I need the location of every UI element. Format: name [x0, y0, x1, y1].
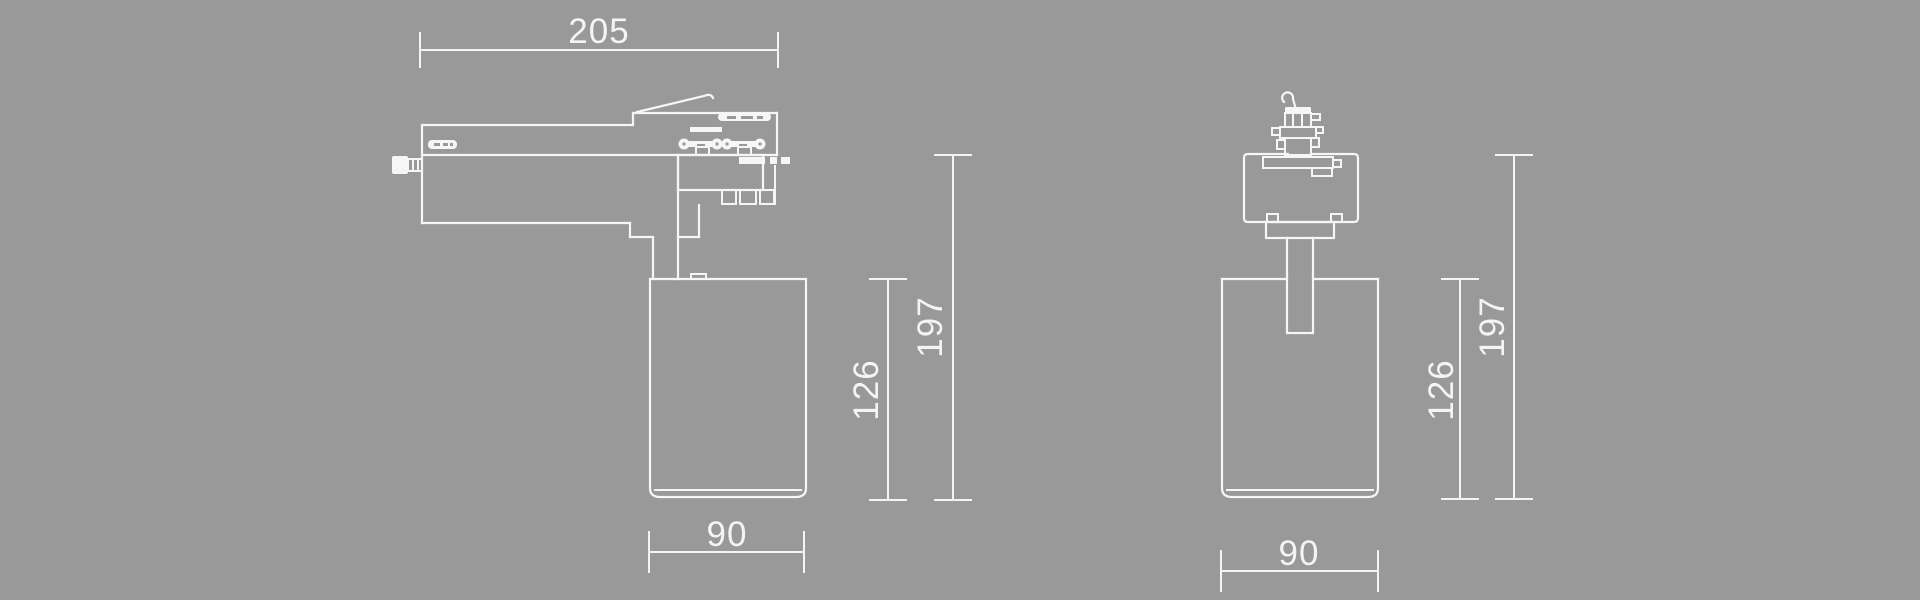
locking-lever	[637, 95, 713, 112]
side-view: 205	[392, 12, 971, 572]
housing-foot	[1267, 214, 1278, 222]
front-dim-overall-height: 197	[1473, 155, 1532, 499]
terminal-tab	[760, 190, 774, 204]
side-lamp-head	[650, 279, 806, 497]
dim-value-126: 126	[847, 359, 886, 420]
electrical-contact	[739, 157, 765, 164]
label-mark	[443, 143, 448, 146]
dim-value-197: 197	[1473, 296, 1512, 357]
front-dim-head-width: 90	[1221, 534, 1378, 591]
adapter-label-mark	[757, 116, 763, 119]
front-track-adapter	[1272, 92, 1323, 155]
side-dim-track-width: 205	[420, 12, 778, 67]
dim-value-90: 90	[1279, 534, 1320, 573]
band-block	[1312, 168, 1332, 176]
adapter-wing	[1277, 140, 1285, 149]
dim-value-126: 126	[1422, 359, 1461, 420]
screw-tab	[738, 147, 751, 155]
screw-slot	[715, 142, 718, 145]
adapter-tab	[1316, 127, 1323, 133]
side-dim-head-width: 90	[649, 515, 804, 572]
dim-value-90: 90	[707, 515, 748, 554]
front-view: 126 197 90	[1221, 92, 1532, 591]
adjustment-knob	[392, 156, 408, 174]
side-driver-housing	[422, 125, 775, 223]
adapter-label-mark	[727, 116, 736, 119]
contact-screws	[679, 139, 766, 156]
electrical-contact	[781, 157, 790, 164]
terminal-tab	[722, 190, 736, 204]
label-mark	[434, 143, 440, 146]
adapter-label-mark	[741, 116, 753, 119]
adapter-column	[1285, 138, 1311, 155]
dim-value-205: 205	[568, 12, 629, 51]
housing-step	[1266, 222, 1334, 238]
band-mark	[1289, 161, 1304, 165]
screw-slot	[682, 142, 685, 145]
terminal-tab	[740, 190, 756, 204]
adapter-tab	[1311, 114, 1320, 120]
label-mark	[450, 143, 453, 146]
screw-tab	[696, 147, 709, 155]
dimension-drawing: 205	[0, 0, 1920, 600]
adapter-wing	[1311, 138, 1319, 147]
band-tab	[1333, 160, 1341, 167]
drawing-svg: 205	[0, 0, 1920, 600]
lamp-head-outline	[650, 279, 806, 497]
adapter-flange	[1280, 127, 1316, 138]
front-driver-housing	[1244, 154, 1358, 238]
side-dim-overall-height: 197	[911, 155, 971, 500]
lamp-head-outline	[1222, 279, 1378, 497]
side-track-adapter	[392, 95, 790, 174]
adapter-tab	[1272, 128, 1280, 135]
front-lamp-head	[1222, 279, 1378, 497]
adapter-bar	[690, 127, 722, 132]
housing-foot	[1331, 214, 1342, 222]
front-stem	[1287, 238, 1313, 333]
screw-slot	[725, 142, 728, 145]
side-pivot-bracket	[630, 155, 706, 279]
screw-slot	[758, 142, 761, 145]
dim-value-197: 197	[911, 296, 950, 357]
knob-stem	[408, 159, 422, 171]
side-dim-head-height: 126	[847, 279, 906, 500]
band-mark	[1270, 161, 1278, 165]
adapter-upper-box	[1285, 113, 1311, 127]
front-dim-head-height: 126	[1422, 279, 1478, 499]
electrical-contact	[770, 157, 777, 164]
